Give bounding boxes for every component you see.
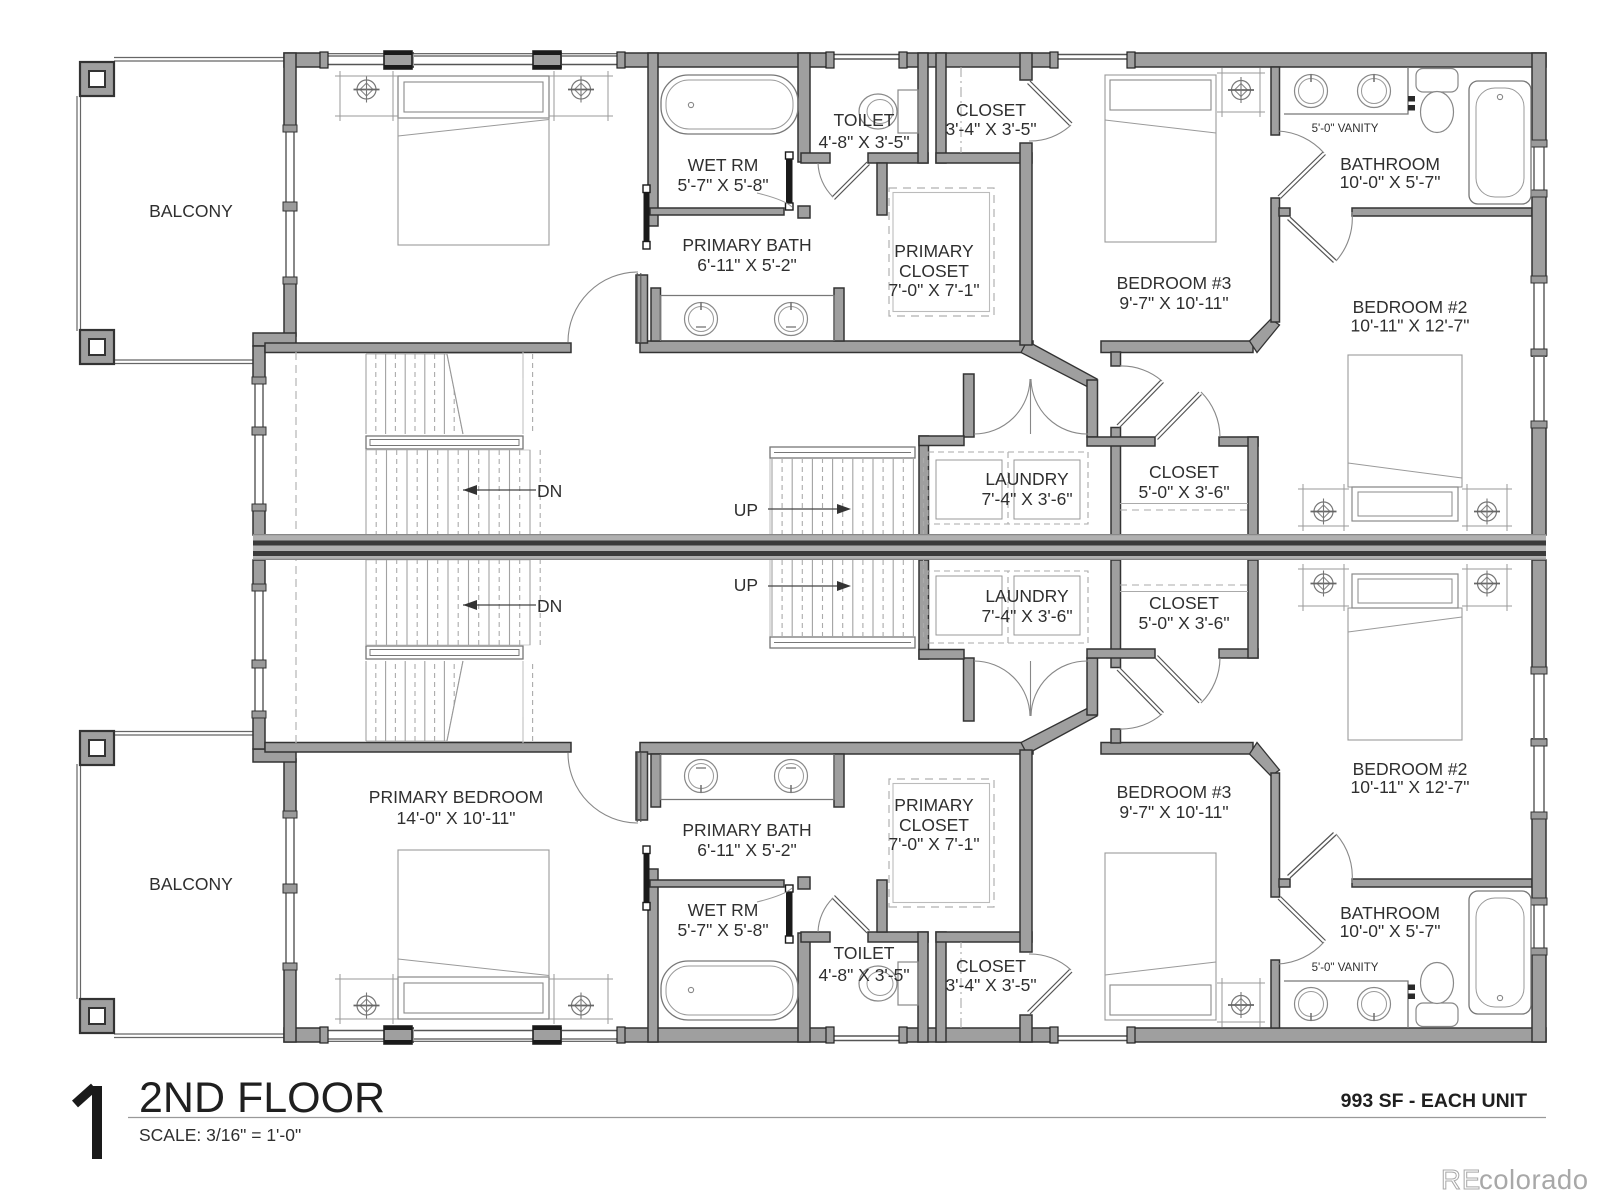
- svg-text:BALCONY: BALCONY: [149, 874, 233, 894]
- svg-text:CLOSET: CLOSET: [899, 815, 969, 835]
- svg-text:7'-4" X 3'-6": 7'-4" X 3'-6": [981, 606, 1072, 626]
- svg-text:BATHROOM: BATHROOM: [1340, 903, 1440, 923]
- svg-text:5'-0" X 3'-6": 5'-0" X 3'-6": [1138, 613, 1229, 633]
- svg-text:4'-8" X 3'-5": 4'-8" X 3'-5": [818, 965, 909, 985]
- svg-text:9'-7" X 10'-11": 9'-7" X 10'-11": [1119, 293, 1228, 313]
- svg-text:PRIMARY BEDROOM: PRIMARY BEDROOM: [369, 787, 543, 807]
- svg-text:7'-0" X 7'-1": 7'-0" X 7'-1": [888, 280, 979, 300]
- svg-text:PRIMARY BATH: PRIMARY BATH: [682, 820, 811, 840]
- svg-text:LAUNDRY: LAUNDRY: [985, 586, 1069, 606]
- svg-text:WET RM: WET RM: [688, 900, 759, 920]
- svg-text:9'-7" X 10'-11": 9'-7" X 10'-11": [1119, 802, 1228, 822]
- svg-text:BALCONY: BALCONY: [149, 201, 233, 221]
- svg-text:10'-11" X 12'-7": 10'-11" X 12'-7": [1351, 316, 1470, 336]
- svg-text:colorado: colorado: [1479, 1164, 1589, 1195]
- svg-text:10'-11" X 12'-7": 10'-11" X 12'-7": [1351, 777, 1470, 797]
- svg-text:PRIMARY: PRIMARY: [894, 241, 974, 261]
- svg-text:5'-0" VANITY: 5'-0" VANITY: [1312, 123, 1379, 135]
- svg-text:CLOSET: CLOSET: [1149, 593, 1219, 613]
- svg-text:WET RM: WET RM: [688, 155, 759, 175]
- svg-text:6'-11" X 5'-2": 6'-11" X 5'-2": [697, 255, 797, 275]
- svg-text:BEDROOM #2: BEDROOM #2: [1353, 297, 1468, 317]
- svg-text:5'-7" X 5'-8": 5'-7" X 5'-8": [677, 920, 768, 940]
- svg-text:UP: UP: [734, 575, 758, 595]
- svg-text:10'-0" X 5'-7": 10'-0" X 5'-7": [1340, 172, 1441, 192]
- svg-text:BEDROOM #3: BEDROOM #3: [1117, 273, 1232, 293]
- svg-text:DN: DN: [537, 596, 562, 616]
- svg-text:6'-11" X 5'-2": 6'-11" X 5'-2": [697, 840, 797, 860]
- svg-text:TOILET: TOILET: [834, 943, 895, 963]
- svg-text:BEDROOM #3: BEDROOM #3: [1117, 782, 1232, 802]
- svg-text:CLOSET: CLOSET: [956, 100, 1026, 120]
- svg-text:5'-0" VANITY: 5'-0" VANITY: [1312, 962, 1379, 974]
- svg-text:10'-0" X 5'-7": 10'-0" X 5'-7": [1340, 921, 1441, 941]
- svg-text:CLOSET: CLOSET: [956, 956, 1026, 976]
- svg-text:TOILET: TOILET: [834, 110, 895, 130]
- svg-text:993 SF - EACH UNIT: 993 SF - EACH UNIT: [1341, 1090, 1527, 1112]
- svg-text:DN: DN: [537, 481, 562, 501]
- svg-text:7'-0" X 7'-1": 7'-0" X 7'-1": [888, 834, 979, 854]
- svg-text:3'-4" X 3'-5": 3'-4" X 3'-5": [945, 119, 1036, 139]
- svg-text:UP: UP: [734, 500, 758, 520]
- svg-text:7'-4" X 3'-6": 7'-4" X 3'-6": [981, 489, 1072, 509]
- svg-text:CLOSET: CLOSET: [1149, 462, 1219, 482]
- svg-text:RE: RE: [1441, 1164, 1481, 1195]
- svg-text:CLOSET: CLOSET: [899, 261, 969, 281]
- svg-text:PRIMARY: PRIMARY: [894, 795, 974, 815]
- svg-text:2ND FLOOR: 2ND FLOOR: [139, 1074, 385, 1122]
- svg-text:LAUNDRY: LAUNDRY: [985, 469, 1069, 489]
- svg-text:5'-0" X 3'-6": 5'-0" X 3'-6": [1138, 482, 1229, 502]
- svg-text:PRIMARY BATH: PRIMARY BATH: [682, 235, 811, 255]
- svg-text:SCALE: 3/16" = 1'-0": SCALE: 3/16" = 1'-0": [139, 1125, 301, 1145]
- svg-text:3'-4" X 3'-5": 3'-4" X 3'-5": [945, 975, 1036, 995]
- svg-text:BATHROOM: BATHROOM: [1340, 154, 1440, 174]
- svg-text:BEDROOM #2: BEDROOM #2: [1353, 759, 1468, 779]
- svg-text:14'-0" X 10'-11": 14'-0" X 10'-11": [397, 808, 516, 828]
- svg-text:4'-8" X 3'-5": 4'-8" X 3'-5": [818, 132, 909, 152]
- svg-text:5'-7" X 5'-8": 5'-7" X 5'-8": [677, 175, 768, 195]
